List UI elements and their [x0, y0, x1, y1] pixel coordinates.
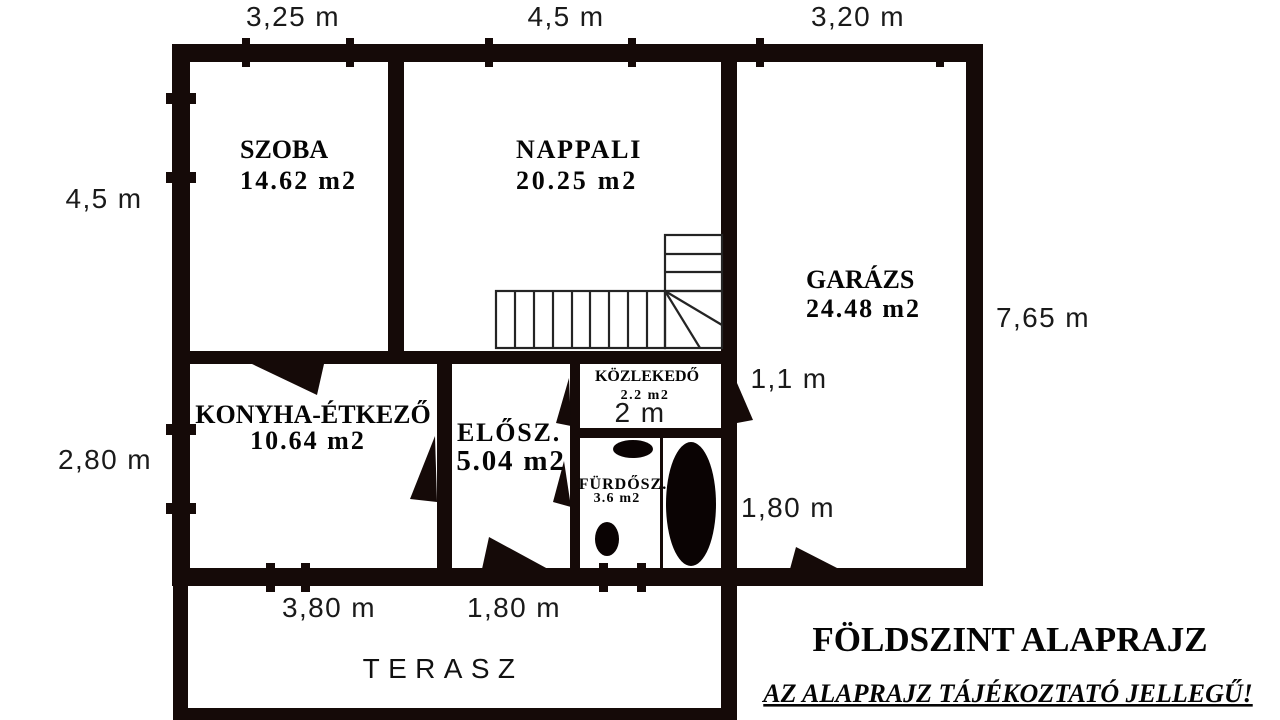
- svg-text:3,25 m: 3,25 m: [246, 1, 340, 32]
- svg-text:GARÁZS: GARÁZS: [806, 265, 914, 294]
- svg-text:1,80 m: 1,80 m: [741, 492, 835, 523]
- svg-text:KONYHA-ÉTKEZŐ: KONYHA-ÉTKEZŐ: [195, 400, 430, 429]
- svg-text:FÖLDSZINT ALAPRAJZ: FÖLDSZINT ALAPRAJZ: [812, 620, 1207, 659]
- svg-text:3,80 m: 3,80 m: [282, 592, 376, 623]
- svg-text:3.6 m2: 3.6 m2: [594, 491, 641, 506]
- svg-text:ELŐSZ.: ELŐSZ.: [457, 418, 561, 447]
- svg-text:KÖZLEKEDŐ: KÖZLEKEDŐ: [595, 366, 699, 385]
- svg-text:5.04 m2: 5.04 m2: [456, 445, 565, 477]
- svg-text:SZOBA: SZOBA: [240, 135, 328, 164]
- svg-text:24.48 m2: 24.48 m2: [806, 294, 921, 323]
- svg-text:NAPPALI: NAPPALI: [516, 135, 642, 164]
- svg-text:AZ ALAPRAJZ TÁJÉKOZTATÓ JELLEG: AZ ALAPRAJZ TÁJÉKOZTATÓ JELLEGŰ!: [761, 679, 1252, 708]
- svg-text:10.64 m2: 10.64 m2: [250, 426, 366, 455]
- svg-text:7,65 m: 7,65 m: [996, 302, 1090, 333]
- svg-text:20.25 m2: 20.25 m2: [516, 166, 638, 195]
- svg-text:14.62 m2: 14.62 m2: [240, 166, 357, 195]
- svg-text:TERASZ: TERASZ: [363, 653, 524, 684]
- svg-text:4,5 m: 4,5 m: [65, 183, 142, 214]
- svg-text:2.2 m2: 2.2 m2: [621, 388, 670, 403]
- svg-text:3,20 m: 3,20 m: [811, 1, 905, 32]
- svg-text:2,80 m: 2,80 m: [58, 444, 152, 475]
- svg-text:1,1 m: 1,1 m: [750, 363, 827, 394]
- svg-text:4,5 m: 4,5 m: [527, 1, 604, 32]
- svg-text:1,80 m: 1,80 m: [467, 592, 561, 623]
